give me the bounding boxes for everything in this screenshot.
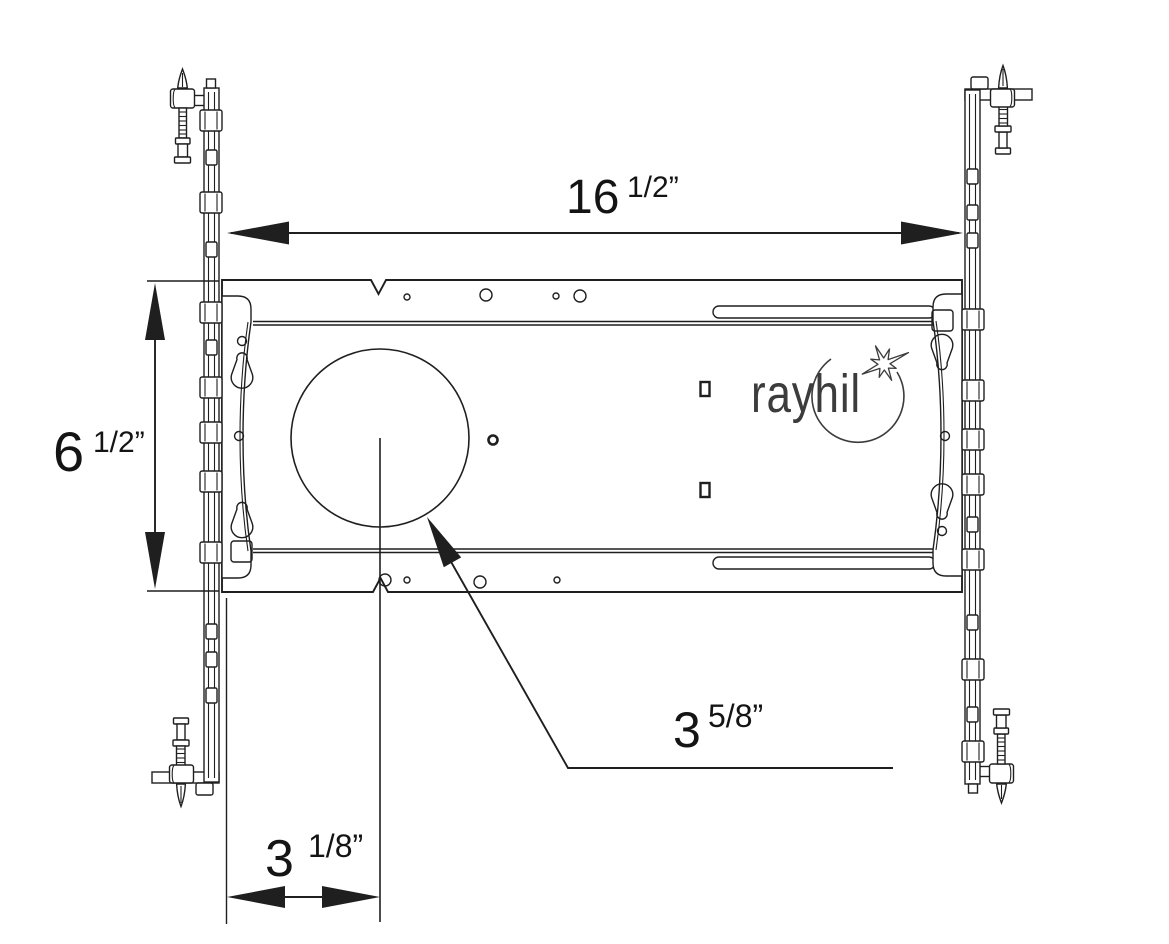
arrowhead-right-icon [901,222,963,245]
logo-text: rayhil [751,364,861,424]
dimension-height-fraction: 1/2” [93,426,145,459]
bar-clip [200,542,222,563]
arrowhead-up-icon [145,283,165,340]
dimension-offset-fraction: 1/8” [308,828,363,864]
nail-collar [173,740,189,746]
mounting-nail-top-left [171,69,195,163]
plate-outline [222,280,962,592]
bar-clip [200,471,222,492]
bar-tab [206,688,217,703]
bar-clip [200,422,222,443]
mounting-plate-drawing: rayhil 16 1/2” 6 1/2” 3 5/8” 3 1/8” [0,0,1169,944]
arrowhead-left-icon [227,222,289,245]
dimension-cutout-whole: 3 [673,702,701,758]
arrowhead-right-icon [322,886,380,908]
bar-tab [206,624,217,639]
dimension-width-whole: 16 [566,171,619,224]
nail-head [174,718,189,724]
foot-tab [196,783,213,795]
bar-clip [200,377,222,398]
bar-tab [206,150,217,165]
mounting-nail-bottom-left [170,718,194,807]
bar-clip [200,110,222,131]
arrowhead-down-icon [145,532,165,589]
dimension-height: 6 1/2” [53,281,219,591]
dimension-width: 16 1/2” [227,171,963,245]
nail-collar [176,138,191,144]
technical-drawing-page: rayhil 16 1/2” 6 1/2” 3 5/8” 3 1/8” [0,0,1169,944]
bar-tab [206,652,217,667]
dimension-offset-whole: 3 [265,830,294,888]
dimension-width-fraction: 1/2” [627,171,679,204]
hanger-bar-assembly-left [152,69,222,807]
dimension-cutout-offset: 3 1/8” [227,598,381,924]
arrowhead-left-icon [227,886,285,908]
bar-top-cap [207,79,216,88]
bar-tab [206,242,217,257]
dimension-height-whole: 6 [53,420,84,483]
dimension-cutout-fraction: 5/8” [708,698,763,734]
nail-head [175,157,191,163]
hanger-bar-assembly-right [962,66,1032,804]
bar-clip [200,192,222,213]
bar-clip [200,302,222,323]
bar-tab [206,340,217,355]
